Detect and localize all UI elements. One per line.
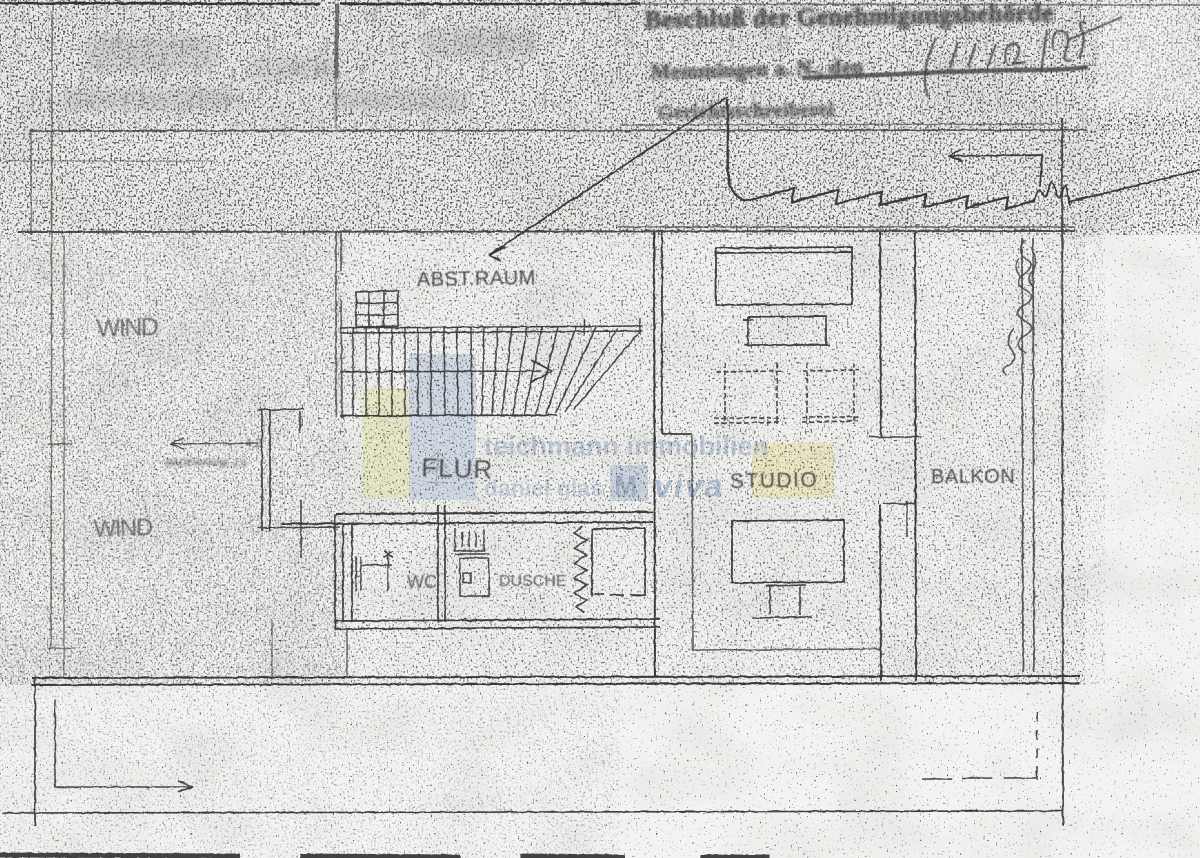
svg-text:Gerichtsschreiberei: Gerichtsschreiberei	[658, 99, 835, 124]
svg-text:BALKON: BALKON	[931, 466, 1015, 488]
svg-text:WIND: WIND	[93, 514, 153, 543]
svg-text:4,2: 4,2	[245, 436, 262, 450]
svg-text:WIND: WIND	[96, 313, 158, 343]
svg-text:WC: WC	[407, 572, 437, 592]
svg-text:BADEWANNE 2,0: BADEWANNE 2,0	[166, 458, 247, 469]
svg-text:ABST.RAUM: ABST.RAUM	[417, 267, 536, 291]
svg-text:DUSCHE: DUSCHE	[499, 573, 567, 590]
svg-text:FLUR: FLUR	[421, 452, 494, 484]
svg-text:STUDIO: STUDIO	[730, 468, 819, 493]
